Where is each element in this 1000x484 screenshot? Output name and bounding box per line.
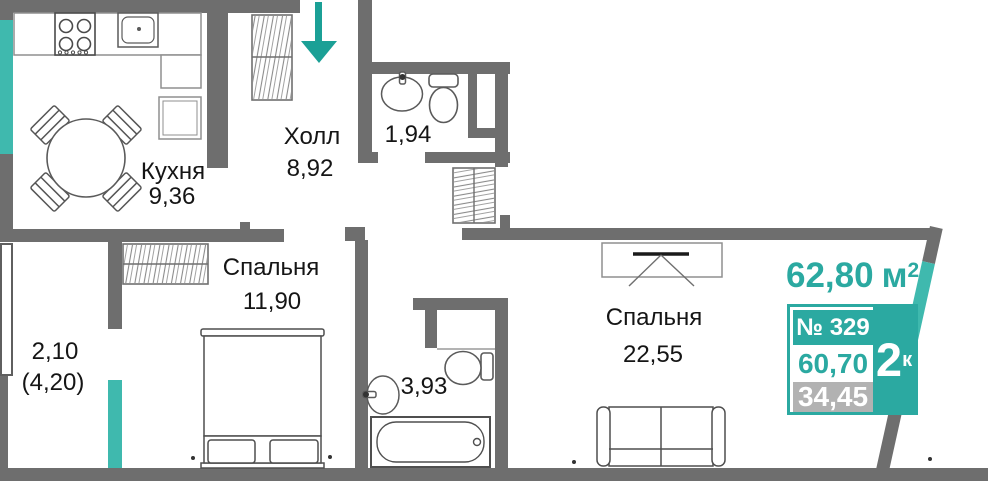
apartment-number-badge: № 329 [793,310,873,345]
rooms-count-sup: к [902,350,912,370]
room-area-bathroom: 3,93 [401,373,448,401]
balcony-area-full: (4,20) [22,369,85,397]
room-area-hall: 8,92 [287,155,334,183]
bathroom-toilet-symbol [445,352,493,385]
room-area-bedroom-large: 22,55 [623,341,683,369]
total-area-unit-sup: 2 [908,259,920,282]
wc-sink-symbol [382,72,423,111]
wardrobe-symbol [252,15,292,100]
room-area-wc: 1,94 [385,121,432,149]
apartment-info-card: 2к № 329 60,70 34,45 [787,304,918,415]
dining-table-symbol [30,105,142,212]
floor-plan: Кухня 9,36 Холл 8,92 1,94 Спальня 11,90 … [0,0,1000,484]
wardrobe-symbol [123,244,208,284]
stove-symbol [55,13,95,55]
total-area-value: 62,80 [786,256,874,295]
room-area-kitchen: 9,36 [149,183,196,211]
room-label-kitchen: Кухня [141,158,205,186]
total-area-title: 62,80м2 [786,258,919,293]
wc-toilet-symbol [429,74,458,123]
room-label-bedroom-large: Спальня [606,304,702,332]
balcony-area-coefficient: 2,10 [32,338,79,366]
rooms-count-badge: 2к [873,307,915,412]
additional-area-badge: 34,45 [793,382,873,412]
wardrobe-symbol [453,168,495,223]
rooms-count-value: 2 [876,336,902,383]
tv-stand-symbol [602,243,722,286]
living-area-value: 60,70 [793,348,873,379]
total-area-unit: м [882,256,908,295]
bed-symbol [191,329,332,468]
room-area-bedroom-small: 11,90 [243,288,301,316]
room-label-hall: Холл [284,123,341,151]
sofa-symbol [572,407,932,466]
kitchen-sink-symbol [118,13,158,47]
bathroom-sink-symbol [363,376,399,414]
room-label-bedroom-small: Спальня [223,254,319,282]
bathtub-symbol [371,417,490,467]
